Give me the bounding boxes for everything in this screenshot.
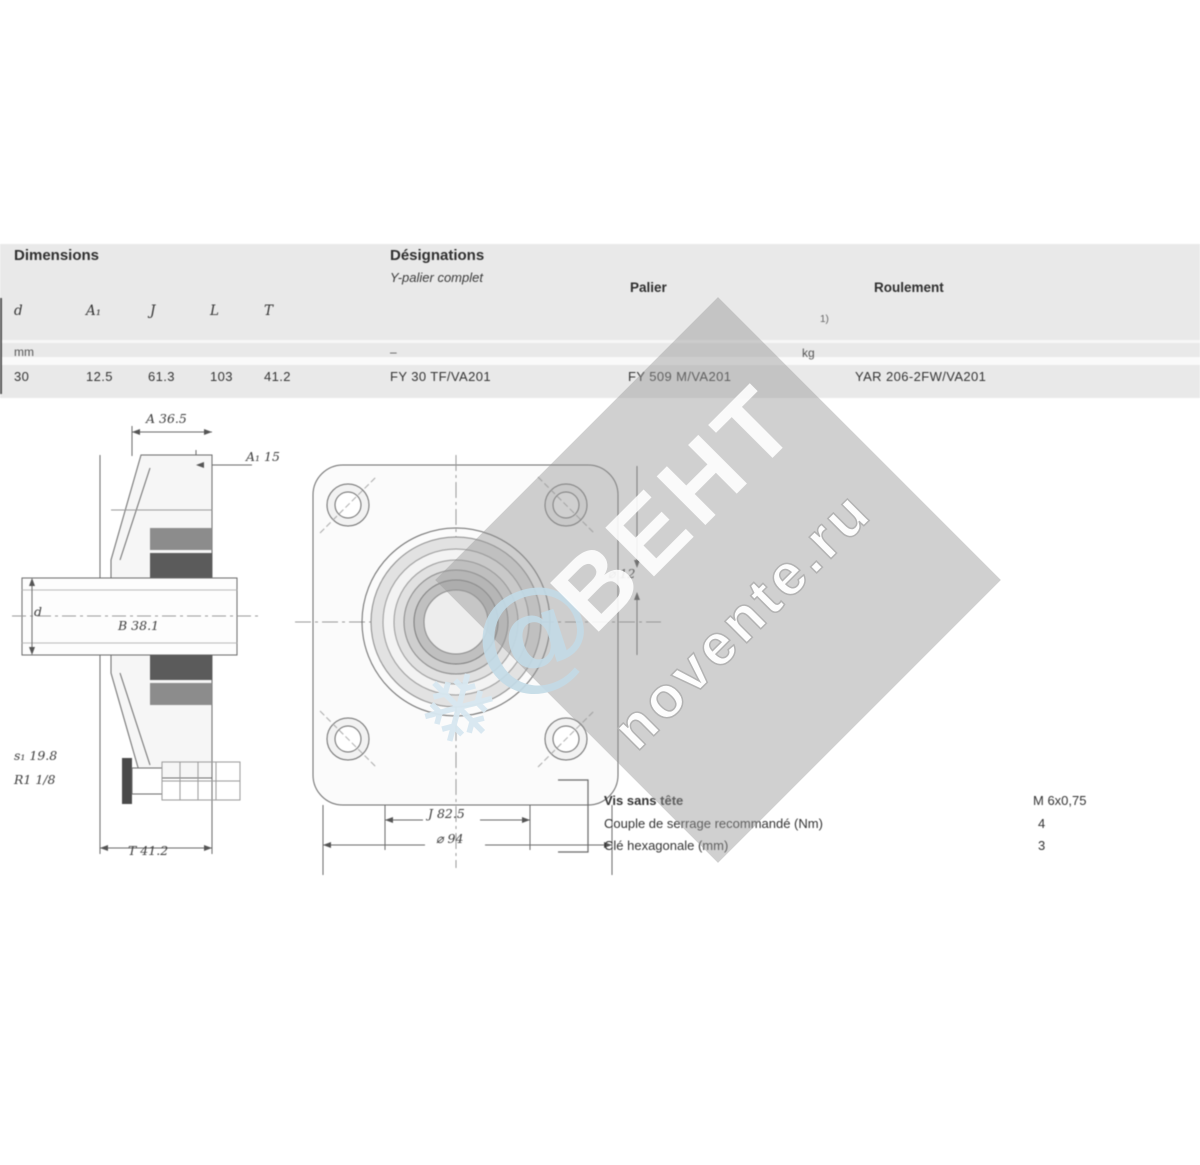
dim-label-j: J 82.5 bbox=[428, 806, 465, 821]
symbol-t: T bbox=[264, 303, 273, 319]
set-screw-size: M 6x0,75 bbox=[1033, 793, 1086, 808]
hex-key-label: Clé hexagonale (mm) bbox=[604, 838, 728, 853]
symbol-j: J bbox=[150, 303, 155, 319]
value-d: 30 bbox=[14, 369, 29, 384]
torque-value: 4 bbox=[1038, 816, 1045, 831]
table-left-border bbox=[0, 298, 2, 394]
designation-value: FY 30 TF/VA201 bbox=[390, 369, 491, 384]
bearing-datasheet-page: Dimensions Désignations Y-palier complet… bbox=[0, 0, 1200, 1165]
dim-label-a: A 36.5 bbox=[146, 411, 187, 426]
unit-dash: – bbox=[390, 345, 397, 359]
value-j: 61.3 bbox=[148, 369, 175, 384]
dimensions-title: Dimensions bbox=[14, 247, 99, 264]
table-separator bbox=[0, 340, 1200, 343]
dim-label-t: T 41.2 bbox=[128, 843, 168, 858]
dim-label-a1: A₁ 15 bbox=[246, 449, 280, 464]
value-l: 103 bbox=[210, 369, 233, 384]
symbol-l: L bbox=[210, 303, 219, 319]
table-row-gap bbox=[0, 357, 1200, 365]
value-t: 41.2 bbox=[264, 369, 291, 384]
dim-label-d: d bbox=[34, 604, 42, 619]
dim-label-r: R1 1/8 bbox=[14, 772, 55, 787]
set-screw-title: Vis sans tête bbox=[604, 793, 683, 808]
hex-key-value: 3 bbox=[1038, 838, 1045, 853]
palier-column-header: Palier bbox=[630, 280, 667, 295]
set-screw-leader bbox=[548, 772, 598, 862]
dim-label-l: ⌀ 94 bbox=[436, 831, 463, 846]
dim-label-b: B 38.1 bbox=[118, 618, 159, 633]
unit-kg: kg bbox=[802, 346, 815, 360]
roulement-column-header: Roulement bbox=[874, 280, 944, 295]
symbol-d: d bbox=[14, 303, 23, 319]
roulement-value: YAR 206-2FW/VA201 bbox=[855, 369, 986, 384]
dim-label-s1: s₁ 19.8 bbox=[14, 748, 57, 763]
datasheet-content: Dimensions Désignations Y-palier complet… bbox=[0, 0, 1200, 1165]
side-view-drawing bbox=[10, 410, 270, 870]
designations-title: Désignations bbox=[390, 247, 484, 264]
unit-mm: mm bbox=[14, 345, 34, 359]
dim-label-hole-dia: ⌀ 12 bbox=[608, 566, 635, 581]
footnote-marker: 1) bbox=[820, 314, 829, 325]
symbol-a1: A₁ bbox=[86, 303, 101, 319]
value-a1: 12.5 bbox=[86, 369, 113, 384]
torque-label: Couple de serrage recommandé (Nm) bbox=[604, 816, 823, 831]
palier-value: FY 509 M/VA201 bbox=[628, 369, 731, 384]
designations-subtitle: Y-palier complet bbox=[390, 270, 483, 285]
product-table-band bbox=[0, 244, 1200, 398]
